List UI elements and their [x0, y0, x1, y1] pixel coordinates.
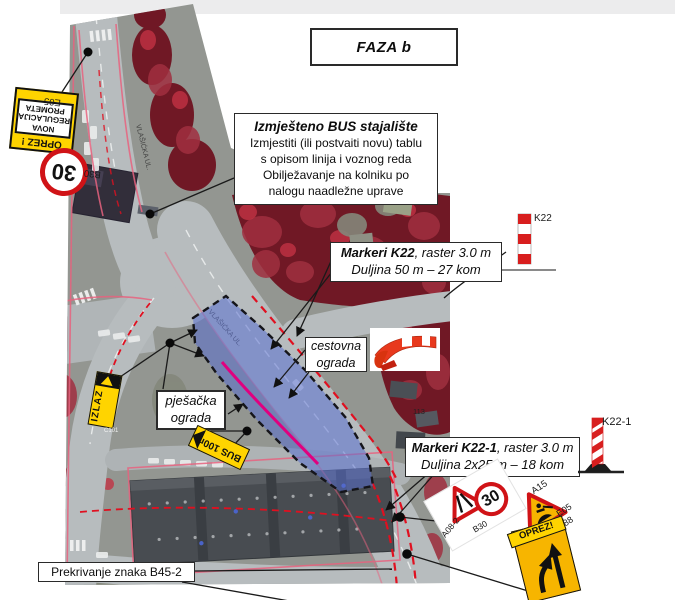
- road-fence-label-box: cestovna ograda: [305, 337, 367, 372]
- phase-title: FAZA b: [357, 39, 412, 56]
- markers-k221-spec: , raster 3.0 m: [497, 440, 574, 455]
- markers-k221-name: Markeri K22-1: [412, 440, 497, 455]
- speed-value: 30: [50, 159, 77, 187]
- house-number-label: 113: [413, 407, 425, 416]
- bus-stop-note-line: Izmjestiti (ili postvaiti novu) tablu: [238, 136, 434, 152]
- traffic-phase-plan: VLAŠIĆKA UL. VLAŠIĆKA UL. 113 FAZA b: [0, 0, 675, 600]
- aerial-photo-content: VLAŠIĆKA UL. VLAŠIĆKA UL. 113: [47, 0, 455, 600]
- speed-value: 30: [479, 487, 503, 511]
- sign-cover-note-box: Prekrivanje znaka B45-2: [38, 562, 195, 582]
- bus-stop-note-title: Izmješteno BUS stajalište: [238, 118, 434, 136]
- sign-cover-note: Prekrivanje znaka B45-2: [51, 565, 182, 579]
- ped-fence-label-box: pješačka ograda: [156, 390, 226, 430]
- sign-code-a082: A08-2: [439, 515, 461, 539]
- ped-fence-line2: ograda: [171, 410, 211, 427]
- markers-k22-name: Markeri K22: [341, 245, 415, 260]
- road-fence-line2: ograda: [317, 355, 356, 371]
- road-fence-icon: [370, 328, 440, 371]
- road-fence-line1: cestovna: [311, 338, 361, 354]
- sign-code-b30-top: B30: [83, 167, 101, 180]
- sign-code-e05-top: E05: [43, 95, 61, 108]
- sign-code-k22: K22: [534, 213, 552, 224]
- lane-shift-arrows-icon: [520, 536, 576, 599]
- aerial-photo: VLAŠIĆKA UL. VLAŠIĆKA UL. 113: [0, 0, 675, 600]
- sign-code-exit: C101: [104, 428, 118, 434]
- bus-stop-note-box: Izmješteno BUS stajalište Izmjestiti (il…: [234, 113, 438, 205]
- bus-stop-note-line: s opisom linija i voznog reda: [238, 152, 434, 168]
- markers-k22-length: Duljina 50 m – 27 kom: [333, 262, 499, 279]
- bus-stop-note-line: Obilježavanje na kolniku po: [238, 168, 434, 184]
- speed-limit-30-sign-bottom: 30: [468, 476, 514, 522]
- ped-fence-line1: pješačka: [165, 393, 216, 410]
- markers-k22-spec: , raster 3.0 m: [415, 245, 492, 260]
- phase-title-box: FAZA b: [310, 28, 458, 66]
- markers-k22-box: Markeri K22, raster 3.0 m Duljina 50 m –…: [330, 242, 502, 282]
- bus-stop-note-line: nalogu naadležne uprave: [238, 184, 434, 200]
- sign-code-k221: K22-1: [602, 416, 631, 428]
